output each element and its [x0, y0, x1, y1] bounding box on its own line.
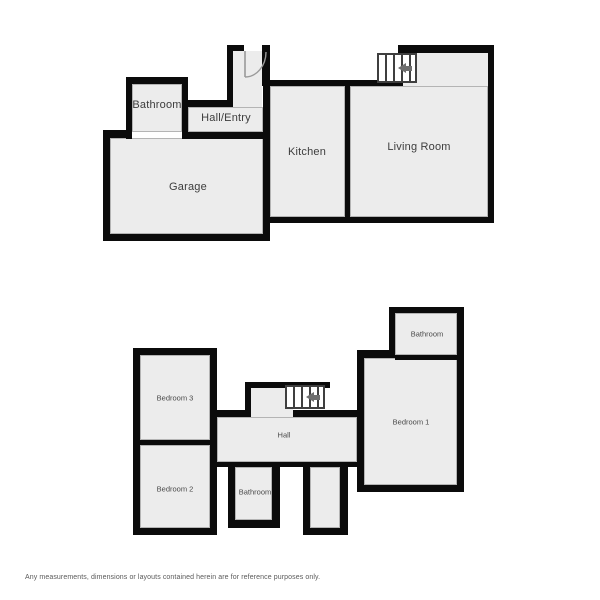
- floor2-unlabeled-room: [310, 467, 340, 528]
- wall-segment: [140, 440, 210, 445]
- floor2-plan: Bathroom Bedroom 1 Bedroom 3 Bedroom 2 H…: [0, 0, 600, 600]
- floor2-stairs: [285, 385, 325, 409]
- floor2-bedroom2-label: Bedroom 2: [157, 485, 194, 494]
- wall-segment: [228, 520, 280, 528]
- stairs-direction-arrow-icon: [306, 392, 320, 402]
- wall-segment: [340, 462, 348, 535]
- floor2-hall-room: [217, 417, 357, 462]
- wall-segment: [389, 307, 464, 313]
- wall-segment: [395, 355, 457, 360]
- floor2-bedroom1-label: Bedroom 1: [393, 418, 430, 427]
- wall-segment: [389, 307, 395, 357]
- wall-segment: [133, 348, 217, 355]
- wall-segment: [228, 462, 235, 528]
- wall-segment: [133, 528, 217, 535]
- wall-segment: [133, 348, 140, 535]
- disclaimer-text: Any measurements, dimensions or layouts …: [25, 574, 320, 581]
- wall-segment: [457, 307, 464, 492]
- floor2-bathroom-lower-label: Bathroom: [239, 488, 272, 497]
- wall-segment: [272, 462, 280, 528]
- floorplan-canvas: Bathroom Hall/Entry Garage Kitchen Livin…: [0, 0, 600, 600]
- floor2-bedroom3-label: Bedroom 3: [157, 394, 194, 403]
- wall-segment: [303, 528, 348, 535]
- wall-segment: [303, 462, 310, 535]
- arrow-head: [306, 392, 314, 402]
- wall-segment: [357, 485, 464, 492]
- wall-segment: [357, 350, 364, 492]
- arrow-stem: [314, 395, 320, 400]
- wall-segment: [293, 410, 364, 417]
- floor2-hall-label: Hall: [278, 431, 291, 440]
- wall-segment: [210, 348, 217, 535]
- floor2-bathroom-upper-label: Bathroom: [411, 330, 444, 339]
